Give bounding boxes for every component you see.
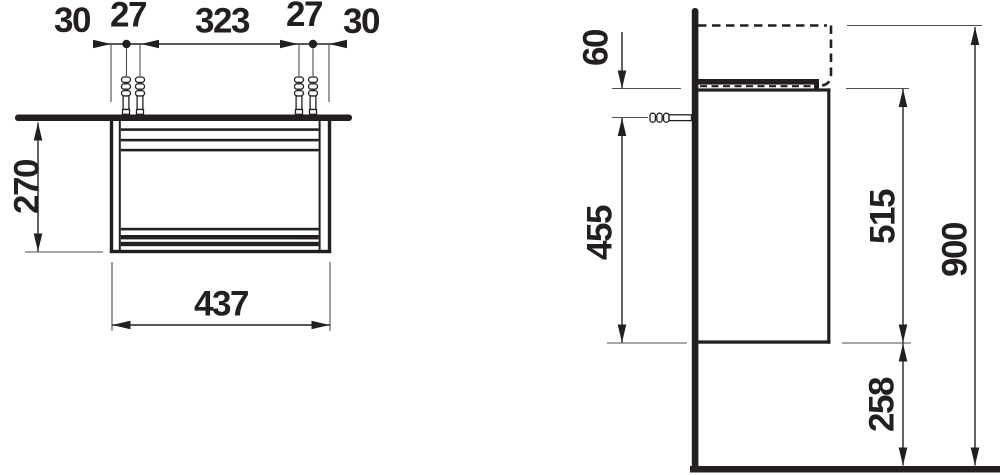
plug-rib bbox=[657, 113, 662, 122]
arrowhead-icon bbox=[34, 123, 43, 141]
plug-rib bbox=[309, 91, 318, 96]
plug-rib bbox=[295, 91, 304, 96]
cabinet-top-edge bbox=[698, 88, 830, 91]
dim-point-dot bbox=[309, 40, 317, 48]
plug-rib bbox=[136, 77, 145, 82]
worktop-edge bbox=[698, 79, 819, 85]
technical-drawing-canvas: 30 27 323 27 30 bbox=[0, 0, 1000, 475]
plug-shaft bbox=[669, 115, 692, 121]
cabinet-inner-panel-right bbox=[319, 121, 321, 250]
plug-base bbox=[310, 110, 317, 115]
arrowhead-icon bbox=[113, 321, 131, 330]
plug-shaft bbox=[310, 96, 316, 110]
plug-rib bbox=[664, 113, 669, 122]
arrowhead-icon bbox=[93, 40, 111, 49]
plug-shaft bbox=[296, 96, 302, 110]
plug-rib bbox=[122, 84, 131, 89]
dim-label-455: 455 bbox=[581, 205, 620, 260]
dim-label-323: 323 bbox=[195, 2, 250, 41]
wall-line bbox=[692, 8, 699, 470]
arrowhead-icon bbox=[141, 40, 159, 49]
dim-label-515: 515 bbox=[864, 189, 903, 244]
plug-rib bbox=[295, 84, 304, 89]
plug-shaft bbox=[123, 96, 129, 110]
arrowhead-icon bbox=[618, 118, 627, 136]
cabinet-rail bbox=[121, 235, 319, 239]
cabinet-rail bbox=[121, 139, 319, 142]
dim-point-dot bbox=[122, 40, 130, 48]
plug-rib bbox=[122, 91, 131, 96]
plug-rib bbox=[309, 77, 318, 82]
arrowhead-icon bbox=[899, 448, 908, 466]
plug-shaft bbox=[137, 96, 143, 110]
cabinet-rail bbox=[121, 128, 319, 131]
arrowhead-icon bbox=[971, 448, 980, 466]
arrowhead-icon bbox=[312, 321, 330, 330]
worktop-line bbox=[15, 115, 352, 122]
cabinet-side-outline bbox=[698, 88, 830, 343]
cabinet-rail bbox=[121, 228, 319, 231]
arrowhead-icon bbox=[899, 89, 908, 107]
wall-plug-icon bbox=[650, 113, 692, 122]
dim-label-27-right: 27 bbox=[286, 0, 322, 34]
worktop-front-lip bbox=[814, 79, 819, 89]
floor-line bbox=[690, 466, 1000, 473]
dim-label-30-right: 30 bbox=[343, 2, 380, 41]
arrowhead-icon bbox=[971, 27, 980, 45]
dim-label-900: 900 bbox=[936, 222, 975, 277]
cabinet-side-right bbox=[328, 121, 331, 253]
cabinet-front-edge bbox=[827, 88, 830, 343]
wall-plug-icon bbox=[136, 77, 145, 114]
front-view: 30 27 323 27 30 bbox=[8, 0, 380, 331]
plug-base bbox=[137, 110, 144, 115]
washbasin-hidden-outline bbox=[698, 26, 831, 86]
plug-rib bbox=[122, 77, 131, 82]
arrowhead-icon bbox=[34, 234, 43, 252]
plug-rib bbox=[136, 84, 145, 89]
worktop-profile bbox=[698, 79, 819, 89]
dim-label-437: 437 bbox=[194, 285, 248, 324]
dim-label-27-left: 27 bbox=[110, 0, 146, 35]
cabinet-side-left bbox=[110, 121, 113, 253]
cabinet-rail bbox=[121, 149, 319, 152]
cabinet-inner-panel-left bbox=[119, 121, 121, 250]
dim-label-60: 60 bbox=[577, 29, 616, 66]
wall-plug-icon bbox=[309, 77, 318, 114]
arrowhead-icon bbox=[618, 71, 627, 89]
plug-rib bbox=[650, 113, 655, 122]
plug-base bbox=[296, 110, 303, 115]
arrowhead-icon bbox=[899, 325, 908, 343]
dim-label-270: 270 bbox=[8, 159, 47, 214]
dim-label-30-left: 30 bbox=[54, 1, 91, 40]
plug-rib bbox=[295, 77, 304, 82]
dim-label-258: 258 bbox=[863, 377, 902, 432]
plug-base bbox=[123, 110, 130, 115]
arrowhead-icon bbox=[280, 40, 298, 49]
cabinet-bottom-edge bbox=[698, 340, 830, 343]
arrowhead-icon bbox=[618, 325, 627, 343]
arrowhead-icon bbox=[899, 344, 908, 362]
plug-rib bbox=[136, 91, 145, 96]
side-view: 60 455 515 258 900 bbox=[577, 8, 1000, 473]
cabinet-outline bbox=[110, 121, 331, 253]
wall-plug-icon bbox=[295, 77, 304, 114]
cabinet-bottom bbox=[110, 250, 331, 253]
cabinet-rail bbox=[121, 242, 319, 246]
plug-rib bbox=[309, 84, 318, 89]
wall-plug-icon bbox=[122, 77, 131, 114]
basin-dashed-side bbox=[822, 26, 831, 86]
